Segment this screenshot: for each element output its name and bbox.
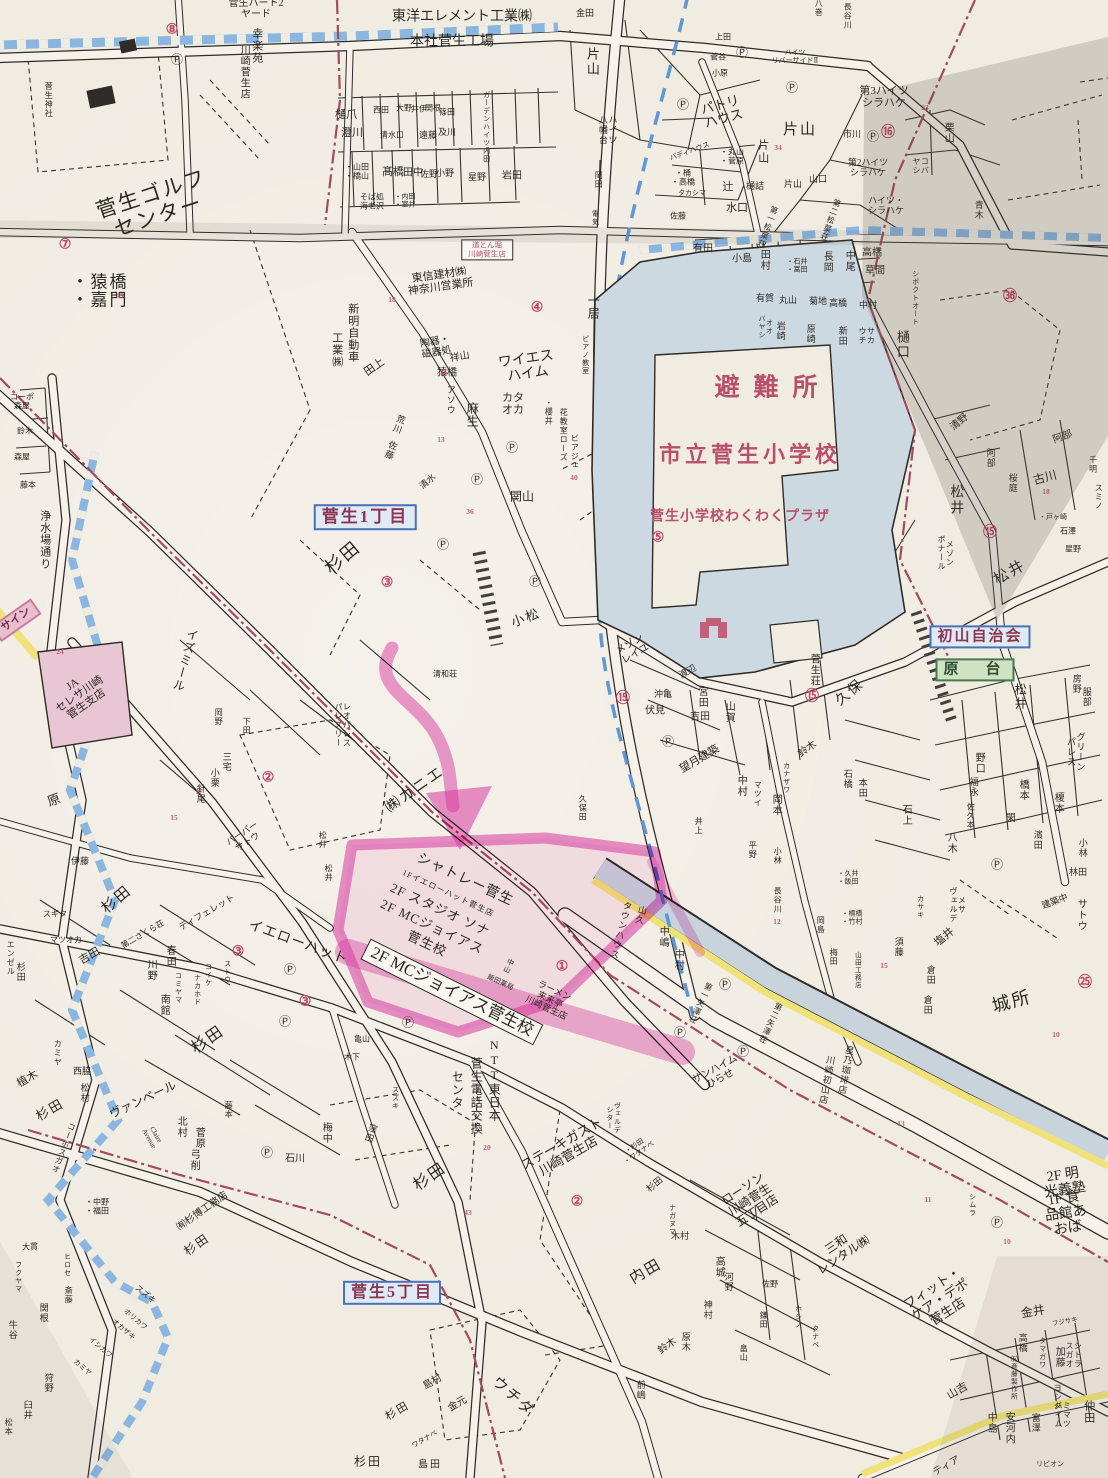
lot-number: 20 xyxy=(483,1144,491,1152)
facility-label: 第二松葉荘 xyxy=(818,197,841,242)
name-label: 松井 xyxy=(318,831,326,849)
name-label: 関山 xyxy=(510,491,534,504)
facility-label: ㈱カニエ xyxy=(383,764,448,816)
facility-label: 星乃珈琲店 xyxy=(836,1045,854,1096)
name-label: 加藤 xyxy=(1053,1346,1064,1368)
name-label: 石川 xyxy=(285,1155,305,1166)
name-label: 大野 xyxy=(396,105,412,114)
circled-number: ⑤ xyxy=(652,530,665,545)
district-box: 初山自治会 xyxy=(929,625,1030,648)
name-label: 及川 xyxy=(438,128,456,138)
facility-label: メゾン ボナール xyxy=(937,535,954,571)
name-label: 篠田 xyxy=(439,109,455,118)
name-label: スズキ xyxy=(391,1086,398,1110)
name-label: 遠藤 xyxy=(419,131,437,141)
name-label: 牛谷 xyxy=(7,1320,16,1340)
name-label: ・久井 ・飯田 xyxy=(838,870,859,885)
area-label: 樋口 xyxy=(895,330,909,360)
facility-label: ハイツ・ シラハケ xyxy=(868,196,904,215)
name-label: 田村 xyxy=(758,249,769,271)
name-label: 清水 xyxy=(418,472,438,491)
name-label: 金井 xyxy=(1020,1304,1046,1321)
name-label: マツオカ xyxy=(50,937,82,946)
lot-number: 15 xyxy=(880,962,888,970)
name-label: 石上 xyxy=(900,804,911,826)
name-label: 河野 xyxy=(723,1272,732,1292)
name-label: 新田 xyxy=(837,326,846,346)
name-label: ・杉田 ・ワタナベ xyxy=(618,1134,655,1166)
facility-label: 第二さくら荘 xyxy=(120,919,166,950)
area-label: 杉田 xyxy=(354,1456,382,1469)
name-label: ティア xyxy=(932,1455,963,1478)
lot-number: 15 xyxy=(170,814,178,822)
name-label: 松村 xyxy=(79,1083,88,1103)
name-label: マツイ xyxy=(753,781,761,808)
parking-icon: Ⓟ xyxy=(719,979,731,992)
facility-label: 浄水場通り xyxy=(38,510,50,570)
name-label: 有賀 xyxy=(756,294,774,304)
paper-map-photo: 菅生1丁目菅生5丁目初山自治会原 台サイン道とん堀 川崎菅生店2F MCジョイア… xyxy=(0,0,1108,1478)
name-label: 伊藤 xyxy=(71,857,89,867)
name-label: 中村 xyxy=(859,301,877,311)
facility-label: 1F 食品館あおば xyxy=(1042,1189,1090,1240)
parking-icon: Ⓟ xyxy=(786,82,798,95)
facility-label: ヴァンベール xyxy=(108,1079,179,1121)
facility-label: タウンハウス xyxy=(608,900,633,960)
name-label: 菅谷 xyxy=(710,54,726,63)
facility-label: 第二矢澤荘 xyxy=(757,1001,784,1045)
facility-label: ヴェルデ シター xyxy=(606,1102,621,1134)
name-label: 金元 xyxy=(447,1395,470,1414)
circled-number: ⑮ xyxy=(805,689,819,704)
highlight-label: 2F スタジオ ソナ xyxy=(388,881,492,939)
lot-number: 36 xyxy=(466,508,474,516)
facility-label: ハイツ リバーサイドⅡ xyxy=(772,49,819,64)
circled-number: ② xyxy=(571,1194,584,1209)
name-label: 小林 xyxy=(1077,838,1086,858)
name-label: 木下 xyxy=(344,1054,360,1063)
name-label: 中村 xyxy=(735,775,746,797)
facility-label: 一居 xyxy=(587,294,600,320)
name-label: 中尾 xyxy=(843,250,854,272)
facility-label: そば処 海老沢 xyxy=(360,193,384,210)
name-label: 杉田 xyxy=(645,1175,665,1194)
name-label: 清水口 xyxy=(380,132,404,141)
circled-number: ⑧ xyxy=(166,22,179,37)
name-label: 井伊 xyxy=(411,106,427,115)
name-label: 西脇 xyxy=(73,1067,91,1077)
name-label: 岩崎 xyxy=(775,321,784,341)
parking-icon: Ⓟ xyxy=(529,576,541,589)
area-label: 杉田 xyxy=(33,1096,66,1123)
area-label: 原 xyxy=(46,791,65,809)
circled-number: ③ xyxy=(232,944,245,959)
facility-label: 東洋エレメント工業㈱ xyxy=(392,9,532,24)
facility-label: 新明自動車 xyxy=(346,303,358,363)
name-label: 有田 xyxy=(693,245,713,256)
name-label: リビオン xyxy=(1036,1461,1064,1469)
facility-label: コーポスガオ xyxy=(50,1121,76,1175)
name-label: ・戸ヶ崎 xyxy=(1039,514,1067,522)
lot-number: 49 xyxy=(116,292,124,300)
name-label: ホリカワ xyxy=(122,1308,148,1332)
lot-number: 24 xyxy=(56,648,64,656)
name-label: 阿部 xyxy=(1052,430,1074,447)
name-label: 小林 xyxy=(773,847,781,865)
parking-icon: Ⓟ xyxy=(737,1046,749,1059)
name-label: ・石井 ・冨田 xyxy=(787,258,808,273)
name-label: ・楠橋 ・竹村 xyxy=(842,910,863,925)
name-label: 小野 xyxy=(436,169,454,179)
name-label: 高橋 xyxy=(862,249,882,260)
facility-label: JA セレサ川崎 菅生支店 xyxy=(47,665,112,726)
facility-label: 幸楽苑 xyxy=(250,28,262,64)
name-label: 小島 xyxy=(732,255,752,266)
name-label: 田中 xyxy=(403,169,423,180)
facility-label: グリーン パレス xyxy=(1066,732,1085,772)
area-label: 杉田 xyxy=(182,1232,212,1259)
area-label: 杉田 xyxy=(321,538,364,579)
name-label: 清野 xyxy=(949,412,971,433)
facility-label: 本社菅生工場 xyxy=(410,34,494,49)
facility-label: ミマツ ハイム xyxy=(1054,1402,1071,1429)
name-label: 菊地 xyxy=(809,297,827,307)
name-label: 鈴木 xyxy=(657,1337,680,1357)
name-label: 林田 xyxy=(1069,868,1087,878)
lot-number: 13 xyxy=(437,436,445,444)
area-label: 島田 xyxy=(418,1461,442,1472)
name-label: 石澤 xyxy=(1060,528,1076,537)
school-label: 避難所 xyxy=(714,375,831,402)
name-label: 古川 xyxy=(1032,469,1059,488)
highlight-label: 1Fイエローハット菅生店 xyxy=(401,869,495,919)
lot-number: 10 xyxy=(1052,1031,1060,1039)
name-label: エンゼル xyxy=(6,940,14,976)
district-box: サイン xyxy=(0,598,41,641)
name-label: 福永 xyxy=(968,777,977,797)
area-label: 片山 xyxy=(756,139,768,165)
facility-label: 望月建築 xyxy=(678,744,722,776)
facility-label: カタ オカ xyxy=(502,393,524,417)
circled-number: ㊱ xyxy=(1003,289,1017,304)
lot-number: 18 xyxy=(1042,488,1050,496)
circled-number: ② xyxy=(262,770,275,785)
area-label: 杉田 xyxy=(410,1160,449,1195)
district-box: 菅生1丁目 xyxy=(314,504,417,530)
name-label: 山田工務店 xyxy=(853,951,860,989)
facility-label: サンハイム ひらせ xyxy=(691,1054,745,1096)
name-label: 佐藤 xyxy=(382,439,398,461)
parking-icon: Ⓟ xyxy=(991,859,1003,872)
name-label: 山口 xyxy=(809,175,827,185)
name-label: 三宅 xyxy=(221,752,230,772)
facility-label: シポクトオート xyxy=(911,270,918,326)
area-label: 松井 xyxy=(1014,683,1027,711)
name-label: フクヤマ xyxy=(14,1261,21,1293)
name-label: ・内田 ・室井 xyxy=(395,193,416,208)
name-label: 荒川 xyxy=(390,413,406,435)
name-label: スギタ xyxy=(43,911,67,920)
facility-label: パトリ ハウス xyxy=(699,93,744,130)
name-label: 濱田 xyxy=(1032,830,1041,850)
school-label: 市立菅生小学校 xyxy=(659,443,841,467)
facility-label: ガーデンハイツ内田 xyxy=(482,91,489,163)
highlight-label: 2F MCジョイアス xyxy=(378,897,486,957)
facility-label: シトラ スガオ xyxy=(1065,1342,1082,1369)
name-label: 春田 xyxy=(164,945,175,967)
name-label: 千明 xyxy=(1086,456,1101,473)
facility-label: 祥山 xyxy=(449,351,471,365)
name-label: 松井 xyxy=(324,864,332,882)
lot-number: 12 xyxy=(773,918,781,926)
name-label: 電気 xyxy=(591,210,598,226)
name-label: 金田 xyxy=(576,9,594,19)
name-label: 岩田 xyxy=(502,172,522,183)
lot-number: 13 xyxy=(897,1120,905,1128)
facility-label: 第2ハイツ シラハケ xyxy=(848,158,888,177)
name-label: 西田 xyxy=(373,107,389,116)
name-label: 片山 xyxy=(784,180,802,190)
name-label: 佐野 xyxy=(420,170,438,180)
name-label: 水口 xyxy=(726,203,748,215)
name-label: 青木 xyxy=(973,200,982,220)
facility-label: アソウ xyxy=(445,385,454,415)
name-label: ストウ xyxy=(223,960,230,984)
name-label: 久保田 xyxy=(578,795,586,822)
district-box: 2F MCジョイアス菅生校 xyxy=(360,939,543,1046)
circled-number: ⑮ xyxy=(616,691,630,706)
facility-label: フィット・ ケア・デポ 菅生店 xyxy=(901,1265,978,1336)
facility-label: ビアジェ xyxy=(570,434,578,470)
name-label: 岡野 xyxy=(214,708,222,726)
district-box: 菅生5丁目 xyxy=(343,1281,441,1305)
name-label: 北村 xyxy=(175,1116,186,1138)
name-label: 阿部 xyxy=(985,448,994,468)
name-label: 中島 xyxy=(985,1412,996,1434)
name-label: 窪田 xyxy=(362,1122,378,1144)
area-label: ウチダ xyxy=(489,1374,538,1420)
name-label: ヒロセ xyxy=(63,1253,70,1277)
name-label: 狩野 xyxy=(43,1373,52,1393)
facility-label: ㈲杉博工務店 xyxy=(175,1190,230,1233)
name-label: 澄川 xyxy=(341,128,363,140)
facility-label: 建築中 xyxy=(1041,893,1070,911)
name-label: 野口 xyxy=(973,752,984,774)
area-label: ・猿橋 ・嘉門 xyxy=(72,274,129,311)
name-label: 木村 xyxy=(671,1232,689,1242)
facility-label: 三和 レンタル㈱ xyxy=(808,1223,872,1277)
facility-label: 2F 明光義塾 xyxy=(1040,1165,1088,1201)
name-label: 本田 xyxy=(857,778,866,798)
parking-icon: Ⓟ xyxy=(677,99,689,112)
name-label: ・山田 ・橋山 xyxy=(345,163,369,180)
name-label: 前嶋 xyxy=(635,1380,644,1400)
name-label: 塩井 xyxy=(933,926,957,949)
name-label: サカ ウチ xyxy=(858,327,875,345)
facility-label: 菅生電話交換 xyxy=(470,1057,483,1135)
name-label: ナガヌマ xyxy=(668,1204,675,1236)
name-label: ワタナベ xyxy=(411,1430,439,1451)
name-label: タナベ xyxy=(811,1325,818,1349)
lot-number: 18 xyxy=(388,296,396,304)
name-label: 樋爪 xyxy=(335,110,357,122)
facility-label: コーポ 森屋 xyxy=(10,393,34,410)
facility-label: ピアノ教室 xyxy=(581,335,588,375)
name-label: 関根 xyxy=(38,1303,47,1323)
name-label: 鈴木 xyxy=(797,740,820,760)
name-label: シムラ xyxy=(968,1193,975,1217)
name-label: 岡本 xyxy=(770,794,781,816)
circled-number: ④ xyxy=(531,300,544,315)
name-label: 関根 xyxy=(425,105,441,114)
name-label: 中村 xyxy=(672,949,683,971)
facility-label: メサ ヴェルデ xyxy=(949,887,966,923)
facility-label: 花教室ローズ xyxy=(559,408,567,462)
facility-label: 飯田薬局 xyxy=(486,974,515,993)
name-label: 市川 xyxy=(843,130,861,140)
name-label: 岡島 xyxy=(816,916,824,934)
name-label: カミヤ xyxy=(53,1040,61,1067)
facility-label: パディハウス xyxy=(669,141,711,162)
name-label: 山賀 xyxy=(723,701,734,723)
school-label: 菅生小学校わくわくプラザ xyxy=(650,509,830,524)
facility-label: ワイエス ハイム xyxy=(497,348,557,386)
facility-label: 第一松葉荘 xyxy=(755,204,778,249)
name-label: 房野 xyxy=(1071,674,1080,694)
parking-icon: Ⓟ xyxy=(437,539,449,552)
name-label: サトウ xyxy=(1075,899,1086,932)
facility-label: センタ xyxy=(451,1071,464,1110)
name-label: 高橋 xyxy=(1017,1333,1026,1353)
name-label: 小栗 xyxy=(209,768,218,788)
name-label: 原崎 xyxy=(805,324,814,344)
parking-icon: Ⓟ xyxy=(662,736,674,749)
name-label: ナカホド xyxy=(193,974,200,1006)
facility-label: メゾン レイユ xyxy=(615,633,652,667)
name-label: 佐野 xyxy=(762,1281,778,1290)
name-label: コバ ヤシ xyxy=(912,157,929,175)
parking-icon: Ⓟ xyxy=(261,1147,273,1160)
facility-label: 菅生ハート2 ヤード xyxy=(229,0,284,21)
area-label: 杉田 xyxy=(99,883,135,917)
area-label: 城所 xyxy=(990,987,1034,1016)
parking-icon: Ⓟ xyxy=(674,1027,686,1040)
facility-label: 第一矢澤荘 xyxy=(687,981,714,1025)
name-label: 髙橋 xyxy=(382,167,404,179)
parking-icon: Ⓟ xyxy=(171,54,183,67)
name-label: 下田 xyxy=(242,717,250,735)
name-label: 服部 xyxy=(1081,687,1090,707)
name-label: 藤本 xyxy=(20,482,36,491)
name-label: 仲田 xyxy=(1082,1400,1094,1424)
name-label: 菅原 xyxy=(193,1127,204,1149)
name-label: 亀山 xyxy=(354,1036,370,1045)
district-box: 道とん堀 川崎菅生店 xyxy=(461,239,513,260)
name-label: 倉田 xyxy=(922,995,931,1015)
facility-label: ㈲斉藤製作所 xyxy=(1009,1356,1016,1401)
name-label: 伏見 xyxy=(645,707,665,718)
area-label: 小松 xyxy=(509,606,542,629)
area-label: 片山 xyxy=(783,122,817,138)
name-label: オカザキ xyxy=(110,1318,136,1342)
name-label: 針尾 xyxy=(195,784,204,804)
name-label: イシカワ xyxy=(87,1336,113,1360)
facility-label: バーバー サトウ xyxy=(225,820,266,856)
name-label: 樋詰 xyxy=(746,182,764,192)
lot-number: 34 xyxy=(774,144,782,152)
name-label: 長谷川 xyxy=(843,3,851,30)
circled-number: ㉕ xyxy=(1078,975,1092,990)
name-label: ホシノ xyxy=(794,1305,801,1329)
name-label: 閑 xyxy=(1003,813,1014,824)
name-label: 桜庭 xyxy=(1007,473,1016,493)
name-label: 高橋 xyxy=(829,299,847,309)
name-label: 星野 xyxy=(468,173,486,183)
facility-label: 中山 xyxy=(501,957,514,975)
facility-label: NTT東日本 xyxy=(488,1038,501,1122)
facility-label: Claire Avenue xyxy=(140,1124,164,1150)
area-label: 久保 xyxy=(833,677,867,709)
name-label: 高城 xyxy=(713,1256,724,1278)
parking-icon: Ⓟ xyxy=(736,47,748,60)
circled-number: ① xyxy=(556,959,569,974)
name-label: 大貫 xyxy=(22,1244,38,1253)
parking-icon: Ⓟ xyxy=(284,964,296,977)
name-label: 丸山 xyxy=(779,296,797,306)
name-label: 上田 xyxy=(715,34,731,43)
name-label: 平野 xyxy=(748,841,756,859)
name-label: 橋本 xyxy=(1017,779,1028,801)
name-label: 沖亀 xyxy=(654,690,672,700)
parking-icon: Ⓟ xyxy=(867,131,879,144)
lot-number: 40 xyxy=(570,474,578,482)
name-label: 佐久本 xyxy=(966,803,974,830)
name-label: 斎藤 xyxy=(64,1286,72,1304)
circled-number: ③ xyxy=(299,994,312,1009)
name-label: 辻 xyxy=(723,182,734,194)
circled-number: ⑮ xyxy=(983,525,997,540)
area-label: 菅生ゴルフ センター xyxy=(93,166,216,245)
name-label: 栗山 xyxy=(942,122,953,144)
name-label: タマガワ xyxy=(1038,1337,1045,1369)
name-label: ・中野 ・福田 xyxy=(85,1198,109,1215)
name-label: 畠山 xyxy=(739,1344,747,1362)
name-label: 中嶋 xyxy=(657,926,668,948)
facility-label: 麻生 xyxy=(466,402,479,428)
area-label: 杉田 xyxy=(188,1023,227,1058)
name-label: 植木 xyxy=(16,1069,41,1090)
name-label: 神村 xyxy=(702,1300,711,1320)
name-label: カミヤ xyxy=(72,1358,93,1377)
parking-icon: Ⓟ xyxy=(506,442,518,455)
name-label: 森屋 xyxy=(14,454,30,463)
name-label: 鈴木 xyxy=(17,428,33,437)
facility-label: 陶器・ 磁器処 xyxy=(419,335,452,361)
facility-label: ティフェレット xyxy=(178,893,237,933)
name-label: 八木 xyxy=(945,832,956,854)
lot-number: 16 xyxy=(440,369,448,377)
lot-number: 23 xyxy=(921,104,929,112)
name-label: 島村 xyxy=(422,1373,445,1392)
name-label: ・丸山 ・菅原 xyxy=(720,148,744,165)
name-label: 星野 xyxy=(1065,546,1081,555)
name-label: 宮田 xyxy=(696,686,707,708)
facility-label: 川崎初山店 xyxy=(817,1055,835,1106)
facility-label: 猿橋 xyxy=(437,369,457,380)
name-label: 倉田 xyxy=(925,965,934,985)
name-label: ・桶 ・高橋 xyxy=(671,169,695,186)
parking-icon: Ⓟ xyxy=(279,1016,291,1029)
